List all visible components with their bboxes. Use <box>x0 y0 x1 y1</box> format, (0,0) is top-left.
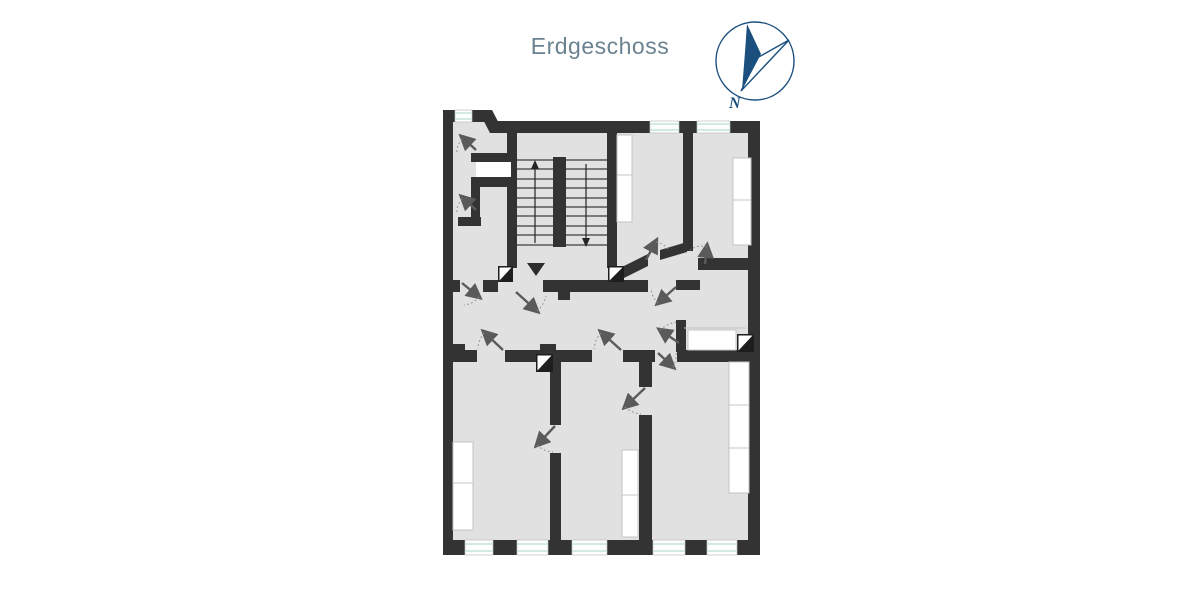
chimney-icon <box>498 266 513 282</box>
wardrobe <box>733 158 751 245</box>
stair-stringer <box>553 157 566 247</box>
chimney-icon <box>737 334 754 352</box>
page-title: Erdgeschoss <box>531 33 669 59</box>
wall-opening <box>476 162 511 177</box>
window <box>455 110 472 122</box>
window <box>517 540 548 555</box>
window <box>653 540 685 555</box>
floor-plan <box>443 110 760 555</box>
chimney-icon <box>608 266 624 282</box>
window <box>707 540 737 555</box>
wardrobe <box>453 442 473 530</box>
floorplan-page: Erdgeschoss N <box>0 0 1200 600</box>
floorplan-canvas: Erdgeschoss N <box>0 0 1200 600</box>
window <box>465 540 493 555</box>
wardrobe <box>617 135 632 222</box>
window <box>650 121 679 133</box>
window <box>572 540 607 555</box>
wardrobe <box>622 450 638 537</box>
window <box>697 121 730 133</box>
north-compass-icon: N <box>716 22 794 112</box>
compass-north-label: N <box>728 95 742 112</box>
chimney-icon <box>536 354 553 372</box>
wardrobe <box>729 362 749 493</box>
